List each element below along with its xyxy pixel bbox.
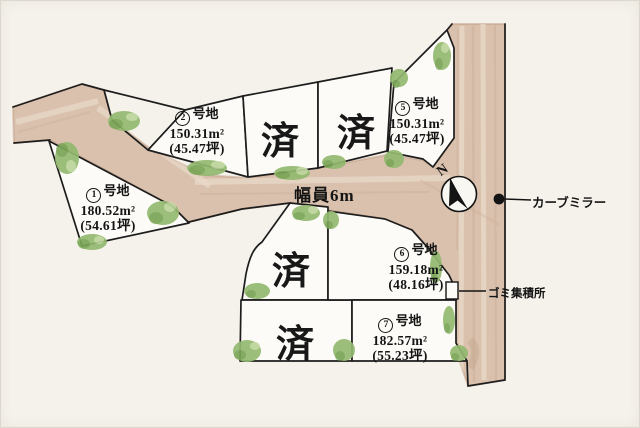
lot-2-label: 2号地 150.31m² (45.47坪) <box>132 106 262 156</box>
bush <box>77 234 107 250</box>
sold-badge-top-2: 済 <box>337 102 375 157</box>
lot-1-label: 1号地 180.52m² (54.61坪) <box>43 183 173 233</box>
curve-mirror-dot <box>494 194 505 205</box>
lot-7-area: 182.57m² <box>335 333 465 348</box>
lot-2-number: 2 <box>175 111 190 126</box>
sold-badge-bottom-1: 済 <box>272 240 310 295</box>
lot-7-number: 7 <box>378 318 393 333</box>
bush <box>292 205 320 221</box>
garbage-station-label: ゴミ集積所 <box>488 285 546 301</box>
bush <box>274 166 310 180</box>
lot-6-tsubo: (48.16坪) <box>351 277 481 292</box>
bush <box>233 340 261 362</box>
lot-1-tsubo: (54.61坪) <box>43 218 173 233</box>
lot-1-number: 1 <box>86 188 101 203</box>
lot-7-name: 号地 <box>395 313 421 328</box>
sold-badge-bottom-2: 済 <box>276 313 314 368</box>
lot-5-number: 5 <box>395 101 410 116</box>
bush <box>55 142 79 174</box>
bush <box>433 42 451 70</box>
lot-6-number: 6 <box>394 247 409 262</box>
lot-1-name: 号地 <box>103 183 129 198</box>
bush <box>187 160 227 176</box>
lot-5-name: 号地 <box>412 96 438 111</box>
curve-mirror-label: カーブミラー <box>532 192 606 211</box>
north-compass <box>442 177 477 212</box>
road-width-label: 幅員6m <box>294 181 355 206</box>
sold-badge-top-1: 済 <box>261 110 299 165</box>
lot-2-name: 号地 <box>192 106 218 121</box>
bush <box>322 155 346 169</box>
bush <box>244 283 270 299</box>
curve-mirror-leader-line <box>505 199 531 200</box>
site-plan-map: 1号地 180.52m² (54.61坪) 2号地 150.31m² (45.4… <box>0 0 640 428</box>
lot-7-label: 7号地 182.57m² (55.23坪) <box>335 313 465 363</box>
lot-2-area: 150.31m² <box>132 126 262 141</box>
lot-6-name: 号地 <box>411 242 437 257</box>
lot-1-area: 180.52m² <box>43 203 173 218</box>
lot-6-label: 6号地 159.18m² (48.16坪) <box>351 242 481 292</box>
bush <box>384 150 404 168</box>
lot-2-tsubo: (45.47坪) <box>132 141 262 156</box>
bush <box>323 211 339 229</box>
lot-6-area: 159.18m² <box>351 262 481 277</box>
lot-7-tsubo: (55.23坪) <box>335 348 465 363</box>
